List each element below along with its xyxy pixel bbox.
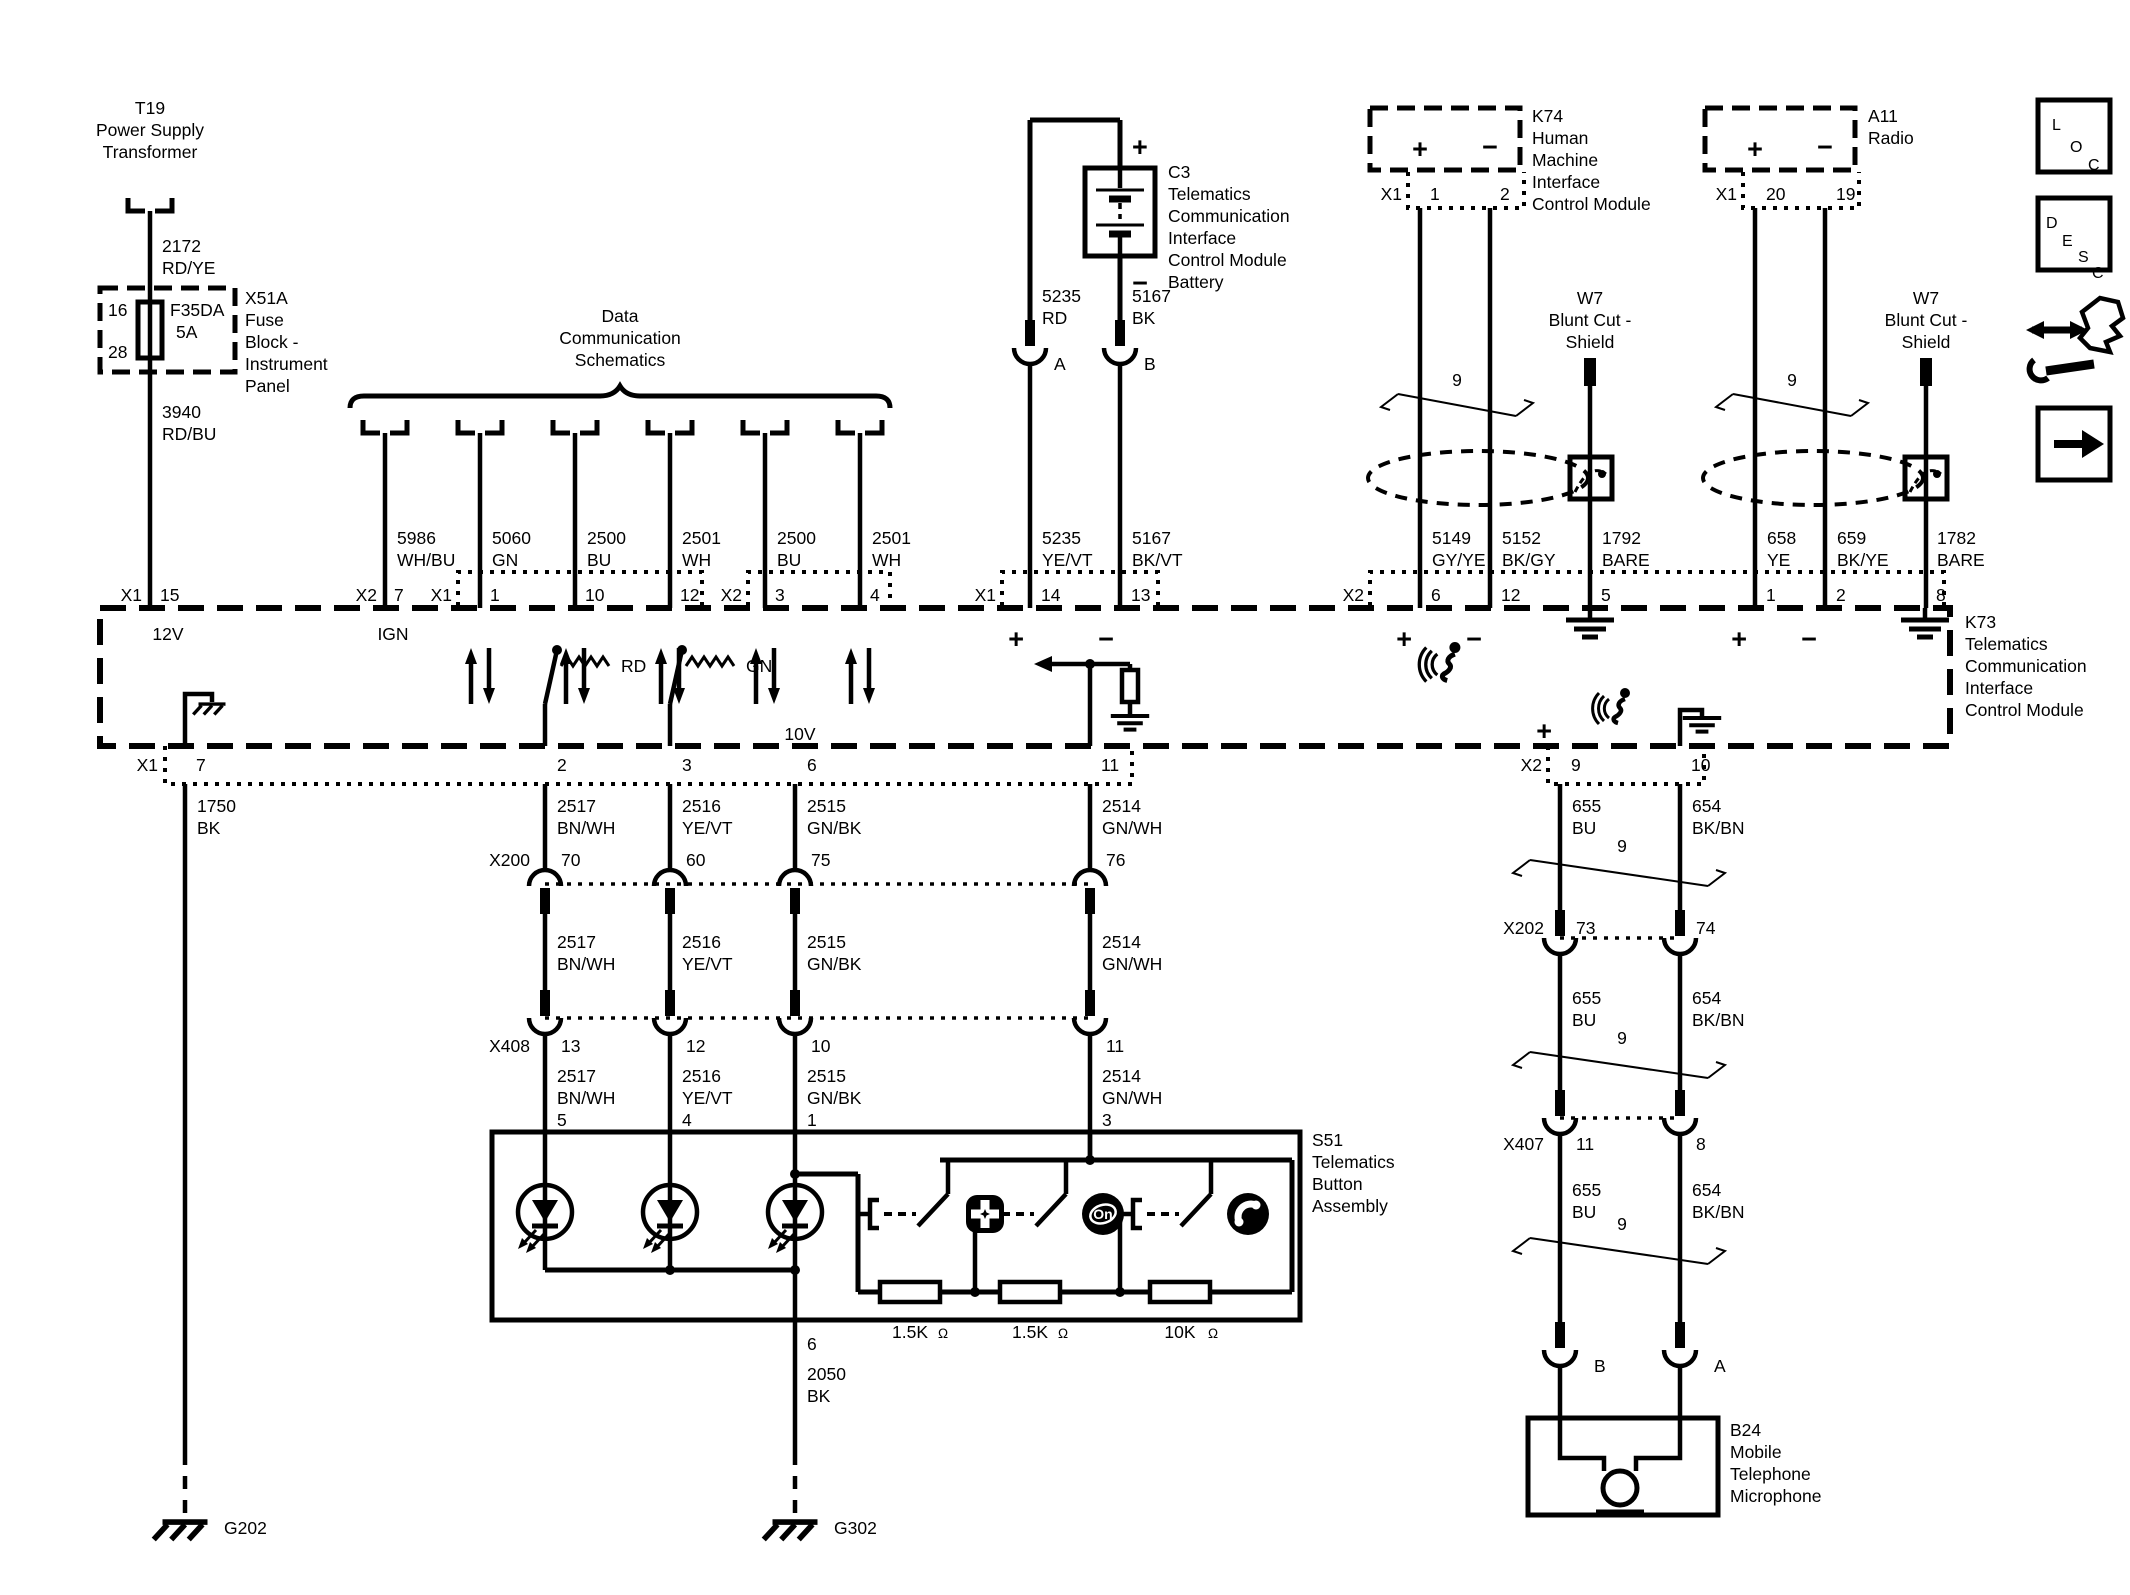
wire-2172-color: RD/YE	[162, 258, 215, 278]
pin-label: 6	[807, 755, 817, 775]
wire-num: 654	[1692, 796, 1721, 816]
conn-label: X2	[356, 585, 377, 605]
wire-num: 2515	[807, 796, 846, 816]
pin-label: 15	[160, 585, 179, 605]
component-connector-icon	[128, 198, 172, 211]
conn-label: X2	[1521, 755, 1542, 775]
terminal-a: A	[1054, 354, 1066, 374]
twisted-pair: 9	[1381, 370, 1533, 416]
wire-num: 2517	[557, 796, 596, 816]
battery-wires-lower	[1030, 364, 1120, 608]
wiring-diagram-page: T19 Power Supply Transformer 2172 RD/YE …	[0, 0, 2130, 1595]
fuse-pin-out: 28	[108, 342, 127, 362]
resistor-value: 10K	[1164, 1322, 1195, 1342]
w7-ref: W7	[1577, 288, 1603, 308]
k73-desc: Control Module	[1965, 700, 2084, 720]
wire-num: 2514	[1102, 796, 1141, 816]
wire-num: 2501	[682, 528, 721, 548]
k73-ref: K73	[1965, 612, 1996, 632]
wire-num: 5235	[1042, 528, 1081, 548]
t19-name2: Transformer	[103, 142, 198, 162]
ground-icon	[1111, 716, 1149, 730]
wire-num: 2517	[557, 1066, 596, 1086]
wire-2172-num: 2172	[162, 236, 201, 256]
wire-color: BN/WH	[557, 954, 615, 974]
twist-count: 9	[1787, 370, 1797, 390]
k74-desc: Interface	[1532, 172, 1600, 192]
pin-label: 12	[1501, 585, 1520, 605]
wire-color: BK	[807, 1386, 831, 1406]
wire-3940-color: RD/BU	[162, 424, 216, 444]
pin-label: 5	[557, 1110, 567, 1130]
twisted-pair: 9	[1716, 370, 1868, 416]
shield-ellipse	[1703, 451, 1923, 505]
harness-repair-icon[interactable]	[2026, 298, 2123, 380]
wire-num: 658	[1767, 528, 1796, 548]
desc-letter: D	[2046, 215, 2058, 232]
pin-label: 6	[807, 1334, 817, 1354]
s51-ref: S51	[1312, 1130, 1343, 1150]
wire-color: YE/VT	[682, 1088, 733, 1108]
microphone-icon	[1596, 1471, 1644, 1512]
shield-ellipse	[1368, 451, 1588, 505]
wire-color: BK/YE	[1837, 550, 1889, 570]
switch-ladder: On 1.5K Ω 1.5K Ω 10K Ω	[790, 1132, 1292, 1342]
led-driver-rd: RD	[545, 645, 646, 746]
wire-color: WH	[682, 550, 711, 570]
wire-num: 2500	[587, 528, 626, 548]
inline-connector-icon	[1664, 1090, 1696, 1134]
w7-ref: W7	[1913, 288, 1939, 308]
pin-label: 2	[1500, 184, 1510, 204]
connector-bracket	[1370, 572, 1944, 606]
conn-label: X2	[721, 585, 742, 605]
pin-label: 60	[686, 850, 706, 870]
wire-num: 5167	[1132, 528, 1171, 548]
fuseblock-ref: X51A	[245, 288, 288, 308]
microphone-circuit: 655 BU 654 BK/BN 9 X202 73 74 655 BU 654…	[1503, 784, 1821, 1515]
s51-desc: Button	[1312, 1174, 1363, 1194]
pin-label: 8	[1696, 1134, 1706, 1154]
wire-num: 655	[1572, 988, 1601, 1008]
wire-color: BK/BN	[1692, 1010, 1745, 1030]
plus-sign: +	[1747, 134, 1763, 164]
pin-label: 4	[682, 1110, 692, 1130]
resistor-value: 1.5K	[892, 1322, 928, 1342]
inline-connector-icon	[779, 870, 811, 914]
loc-letter: L	[2052, 117, 2061, 134]
inline-connector-icon	[529, 990, 561, 1034]
wire-color: YE	[1767, 550, 1790, 570]
a11-name: Radio	[1868, 128, 1914, 148]
ohm-sign: Ω	[938, 1326, 948, 1341]
a11-wires	[1755, 208, 1825, 608]
desc-letter: E	[2062, 233, 2073, 250]
twist-count: 9	[1452, 370, 1462, 390]
desc-letter: S	[2078, 249, 2089, 266]
blunt-cut-icon	[1584, 358, 1596, 386]
wire-3940-num: 3940	[162, 402, 201, 422]
fuseblock-desc: Block -	[245, 332, 299, 352]
pin-label: 19	[1836, 184, 1855, 204]
inline-connector-icon	[1074, 870, 1106, 914]
datacomm-title: Schematics	[575, 350, 666, 370]
wire-num: 655	[1572, 1180, 1601, 1200]
minus-sign: −	[1482, 132, 1498, 162]
person-speaking-icon	[1419, 642, 1460, 682]
twist-count: 9	[1617, 836, 1627, 856]
plus-sign: +	[1731, 624, 1747, 654]
wire-num: 2516	[682, 796, 721, 816]
wire-color: YE/VT	[682, 954, 733, 974]
g302-label: G302	[834, 1518, 877, 1538]
wire-num: 1750	[197, 796, 236, 816]
k74-desc: Machine	[1532, 150, 1598, 170]
conn-label: X1	[137, 755, 158, 775]
wire-color: BK/BN	[1692, 1202, 1745, 1222]
conn-label: X408	[489, 1036, 530, 1056]
fuseblock-desc: Fuse	[245, 310, 284, 330]
plus-sign: +	[1132, 132, 1148, 162]
pin-label: 11	[1106, 1036, 1124, 1056]
wire-num: 2516	[682, 1066, 721, 1086]
fuse-rating: 5A	[176, 322, 198, 342]
pin-label: 1	[1766, 585, 1776, 605]
fuseblock-desc: Panel	[245, 376, 290, 396]
twisted-pair: 9	[1513, 836, 1725, 886]
legend-icons: L O C D E S C	[2026, 100, 2123, 480]
w7-desc: Blunt Cut -	[1885, 310, 1968, 330]
wire-num: 1782	[1937, 528, 1976, 548]
wire-color: BU	[1572, 1010, 1596, 1030]
k74-desc: Human	[1532, 128, 1588, 148]
resistor-icon	[880, 1282, 940, 1302]
pin-label: 13	[561, 1036, 580, 1056]
signal-12v: 12V	[152, 624, 183, 644]
terminal-b: B	[1594, 1356, 1606, 1376]
wire-color: BK/GY	[1502, 550, 1556, 570]
wire-num: 654	[1692, 988, 1721, 1008]
internal-ground-wire	[1680, 710, 1702, 746]
wire-color: WH	[872, 550, 901, 570]
ground-g202-branch: 1750 BK G202	[154, 784, 267, 1540]
wire-num: 2514	[1102, 1066, 1141, 1086]
battery-icon	[1096, 168, 1144, 256]
loc-icon[interactable]: L O C	[2038, 100, 2110, 174]
twist-count: 9	[1617, 1028, 1627, 1048]
inline-connector-icon	[1664, 910, 1696, 954]
terminal-b: B	[1144, 354, 1156, 374]
datacomm-drops	[363, 420, 882, 608]
pin-label: 9	[1571, 755, 1581, 775]
k74-wires	[1420, 208, 1490, 608]
plus-sign: +	[1412, 134, 1428, 164]
wire-num: 5149	[1432, 528, 1471, 548]
wire-color: BN/WH	[557, 1088, 615, 1108]
c3-ref: C3	[1168, 162, 1190, 182]
desc-icon[interactable]: D E S C	[2038, 198, 2110, 282]
t19-ref: T19	[135, 98, 165, 118]
a11-ref: A11	[1868, 106, 1898, 126]
pin-label: 2	[1836, 585, 1846, 605]
conn-label: X2	[1343, 585, 1364, 605]
pin-label: 11	[1101, 755, 1119, 775]
wire-num: 5060	[492, 528, 531, 548]
wire-color: YE/VT	[1042, 550, 1093, 570]
w7-blunt-cut-shield: W7 Blunt Cut - Shield	[1368, 288, 1632, 608]
wire-num: 2500	[777, 528, 816, 548]
wire-color: BK	[197, 818, 221, 838]
loc-letter: C	[2088, 157, 2100, 174]
c3-desc: Control Module	[1168, 250, 1287, 270]
k73-desc: Telematics	[1965, 634, 2048, 654]
wire-color: GY/YE	[1432, 550, 1486, 570]
wire-color: GN	[492, 550, 518, 570]
blunt-cut-icon	[1920, 358, 1932, 386]
pin-label: 1	[490, 585, 500, 605]
forward-arrow-icon[interactable]	[2038, 408, 2110, 480]
pin-label: 70	[561, 850, 581, 870]
k73-desc: Communication	[1965, 656, 2087, 676]
wire-num: 655	[1572, 796, 1601, 816]
pin-label: 12	[686, 1036, 705, 1056]
pin-label: 1	[1430, 184, 1440, 204]
loc-letter: O	[2070, 139, 2082, 156]
inline-connector-icon	[654, 990, 686, 1034]
plus-sign: +	[1536, 716, 1552, 746]
wire-color: BU	[587, 550, 611, 570]
wire-num: 654	[1692, 1180, 1721, 1200]
onstar-button-icon: On	[1082, 1193, 1124, 1235]
wire-color: GN/BK	[807, 954, 862, 974]
wire-color: GN/BK	[807, 818, 862, 838]
b24-box	[1528, 1418, 1718, 1515]
wire-color: GN/WH	[1102, 818, 1162, 838]
w7-desc: Shield	[1902, 332, 1951, 352]
phone-button-icon	[1227, 1193, 1269, 1235]
minus-sign: −	[1817, 132, 1833, 162]
wire-color: BK/BN	[1692, 818, 1745, 838]
button-circuit: X200 70 60 75 76 2517 BN/WH 2516 YE/VT 2…	[489, 784, 1395, 1540]
wire-color: GN/WH	[1102, 954, 1162, 974]
desc-letter: C	[2092, 265, 2104, 282]
w7-desc: Blunt Cut -	[1549, 310, 1632, 330]
b24-ref: B24	[1730, 1420, 1761, 1440]
ohm-sign: Ω	[1208, 1326, 1218, 1341]
pin-label: 3	[775, 585, 785, 605]
c3-desc: Telematics	[1168, 184, 1251, 204]
wire-color: GN/BK	[807, 1088, 862, 1108]
pin-label: 3	[682, 755, 692, 775]
pin-label: 4	[870, 585, 880, 605]
b24-desc: Telephone	[1730, 1464, 1811, 1484]
inline-connector-icon	[1544, 910, 1576, 954]
wire-num: 5152	[1502, 528, 1541, 548]
conn-label: X1	[975, 585, 996, 605]
conn-label: X202	[1503, 918, 1544, 938]
resistor-value: 1.5K	[1012, 1322, 1048, 1342]
wire-color: BU	[1572, 818, 1596, 838]
supply-10v: 10V	[784, 724, 815, 744]
pin-label: 76	[1106, 850, 1125, 870]
inline-connector-icon	[779, 990, 811, 1034]
s51-desc: Telematics	[1312, 1152, 1395, 1172]
pin-label: 75	[811, 850, 830, 870]
inline-connector-icon	[1664, 1322, 1696, 1366]
pin-label: 13	[1131, 585, 1150, 605]
data-communication: Data Communication Schematics 5986 WH/BU…	[350, 306, 911, 704]
pin-label: 20	[1766, 184, 1786, 204]
inline-connector-icon	[1074, 990, 1106, 1034]
emergency-button-icon	[966, 1195, 1004, 1233]
conn-label: X1	[1716, 184, 1737, 204]
connector-bracket	[748, 572, 890, 606]
wire-color: RD	[1042, 308, 1067, 328]
pin-label: 12	[680, 585, 699, 605]
wire-num: 5986	[397, 528, 436, 548]
t19-name: Power Supply	[96, 120, 204, 140]
wire-num: 2514	[1102, 932, 1141, 952]
conn-label: X407	[1503, 1134, 1544, 1154]
brace	[350, 386, 890, 408]
conn-label: X1	[1381, 184, 1402, 204]
c3-desc: Battery	[1168, 272, 1224, 292]
k74-desc: Control Module	[1532, 194, 1651, 214]
w7-desc: Shield	[1566, 332, 1615, 352]
ground-icon	[1566, 620, 1614, 637]
pin-label: 5	[1601, 585, 1611, 605]
conn-label: X200	[489, 850, 530, 870]
ohm-sign: Ω	[1058, 1326, 1068, 1341]
chassis-ground-icon	[764, 1522, 818, 1540]
person-speaking-icon	[1593, 688, 1630, 724]
wire-color: GN/WH	[1102, 1088, 1162, 1108]
pin-label: 2	[557, 755, 567, 775]
internal-ground-wire	[185, 694, 212, 746]
chassis-ground-icon	[193, 704, 225, 715]
wire-num: 5235	[1042, 286, 1081, 306]
ground-icon	[1901, 620, 1949, 637]
pin-label: 10	[1691, 755, 1711, 775]
pin-label: 1	[807, 1110, 817, 1130]
driver-color-label: GN	[746, 656, 772, 676]
pin-label: 10	[811, 1036, 831, 1056]
fuse-pin-in: 16	[108, 300, 127, 320]
pin-label: 7	[394, 585, 404, 605]
power-supply-circuit: T19 Power Supply Transformer 2172 RD/YE …	[96, 98, 328, 644]
pin-label: 14	[1041, 585, 1061, 605]
plus-sign: +	[1008, 624, 1024, 654]
wire-color: BU	[777, 550, 801, 570]
sense-pulldown	[1034, 656, 1149, 746]
driver-color-label: RD	[621, 656, 646, 676]
wire-num: 5167	[1132, 286, 1171, 306]
b24-desc: Mobile	[1730, 1442, 1782, 1462]
conn-label: X1	[121, 585, 142, 605]
inline-connector-icon	[1544, 1090, 1576, 1134]
resistor-icon	[1122, 670, 1138, 702]
wrench-icon	[2030, 360, 2094, 380]
chassis-ground-icon	[154, 1522, 208, 1540]
datacomm-title: Data	[602, 306, 639, 326]
wire-color: WH/BU	[397, 550, 455, 570]
signal-ign: IGN	[377, 624, 408, 644]
w7-blunt-cut-shield: W7 Blunt Cut - Shield	[1703, 288, 1968, 608]
resistor-icon	[1000, 1282, 1060, 1302]
minus-sign: −	[1098, 624, 1114, 654]
wire-color: BARE	[1937, 550, 1985, 570]
fuseblock-desc: Instrument	[245, 354, 328, 374]
c3-desc: Interface	[1168, 228, 1236, 248]
wiring-diagram: T19 Power Supply Transformer 2172 RD/YE …	[0, 0, 2130, 1595]
datacomm-title: Communication	[559, 328, 681, 348]
inline-connector-icon	[1544, 1322, 1576, 1366]
conn-label: X1	[431, 585, 452, 605]
pin-label: 10	[585, 585, 605, 605]
ground-icon	[1683, 718, 1721, 732]
wire-num: 2050	[807, 1364, 846, 1384]
inline-connector-icon	[529, 870, 561, 914]
pin-label: 11	[1576, 1134, 1594, 1154]
wire-color: BK/VT	[1132, 550, 1183, 570]
twist-count: 9	[1617, 1214, 1627, 1234]
pin-label: 3	[1102, 1110, 1112, 1130]
s51-desc: Assembly	[1312, 1196, 1388, 1216]
wire-num: 2517	[557, 932, 596, 952]
plus-sign: +	[1396, 624, 1412, 654]
wire-num: 2516	[682, 932, 721, 952]
b24-desc: Microphone	[1730, 1486, 1821, 1506]
c3-desc: Communication	[1168, 206, 1290, 226]
wire-num: 2515	[807, 1066, 846, 1086]
battery-circuit: + C3 Telematics Communication Interface …	[975, 120, 1290, 654]
wire-color: BN/WH	[557, 818, 615, 838]
wire-num: 2515	[807, 932, 846, 952]
wire-color: BU	[1572, 1202, 1596, 1222]
pin-label: 8	[1936, 585, 1946, 605]
k73-desc: Interface	[1965, 678, 2033, 698]
terminal-a: A	[1714, 1356, 1726, 1376]
wire-color: BARE	[1602, 550, 1650, 570]
pin-label: 6	[1431, 585, 1441, 605]
wire-num: 1792	[1602, 528, 1641, 548]
pin-label: 74	[1696, 918, 1716, 938]
inline-connector-icon	[654, 870, 686, 914]
minus-sign: −	[1801, 624, 1817, 654]
twisted-pair: 9	[1513, 1028, 1725, 1078]
wire-color: BK	[1132, 308, 1156, 328]
g202-label: G202	[224, 1518, 267, 1538]
wire-color: YE/VT	[682, 818, 733, 838]
wire-num: 659	[1837, 528, 1866, 548]
connector-bracket	[165, 746, 1132, 784]
pin-label: 73	[1576, 918, 1595, 938]
pin-label: 7	[196, 755, 206, 775]
fuse-id: F35DA	[170, 300, 225, 320]
minus-sign: −	[1466, 624, 1482, 654]
wire-num: 2501	[872, 528, 911, 548]
k74-ref: K74	[1532, 106, 1563, 126]
resistor-icon	[1150, 1282, 1210, 1302]
onstar-text: On	[1093, 1206, 1112, 1222]
